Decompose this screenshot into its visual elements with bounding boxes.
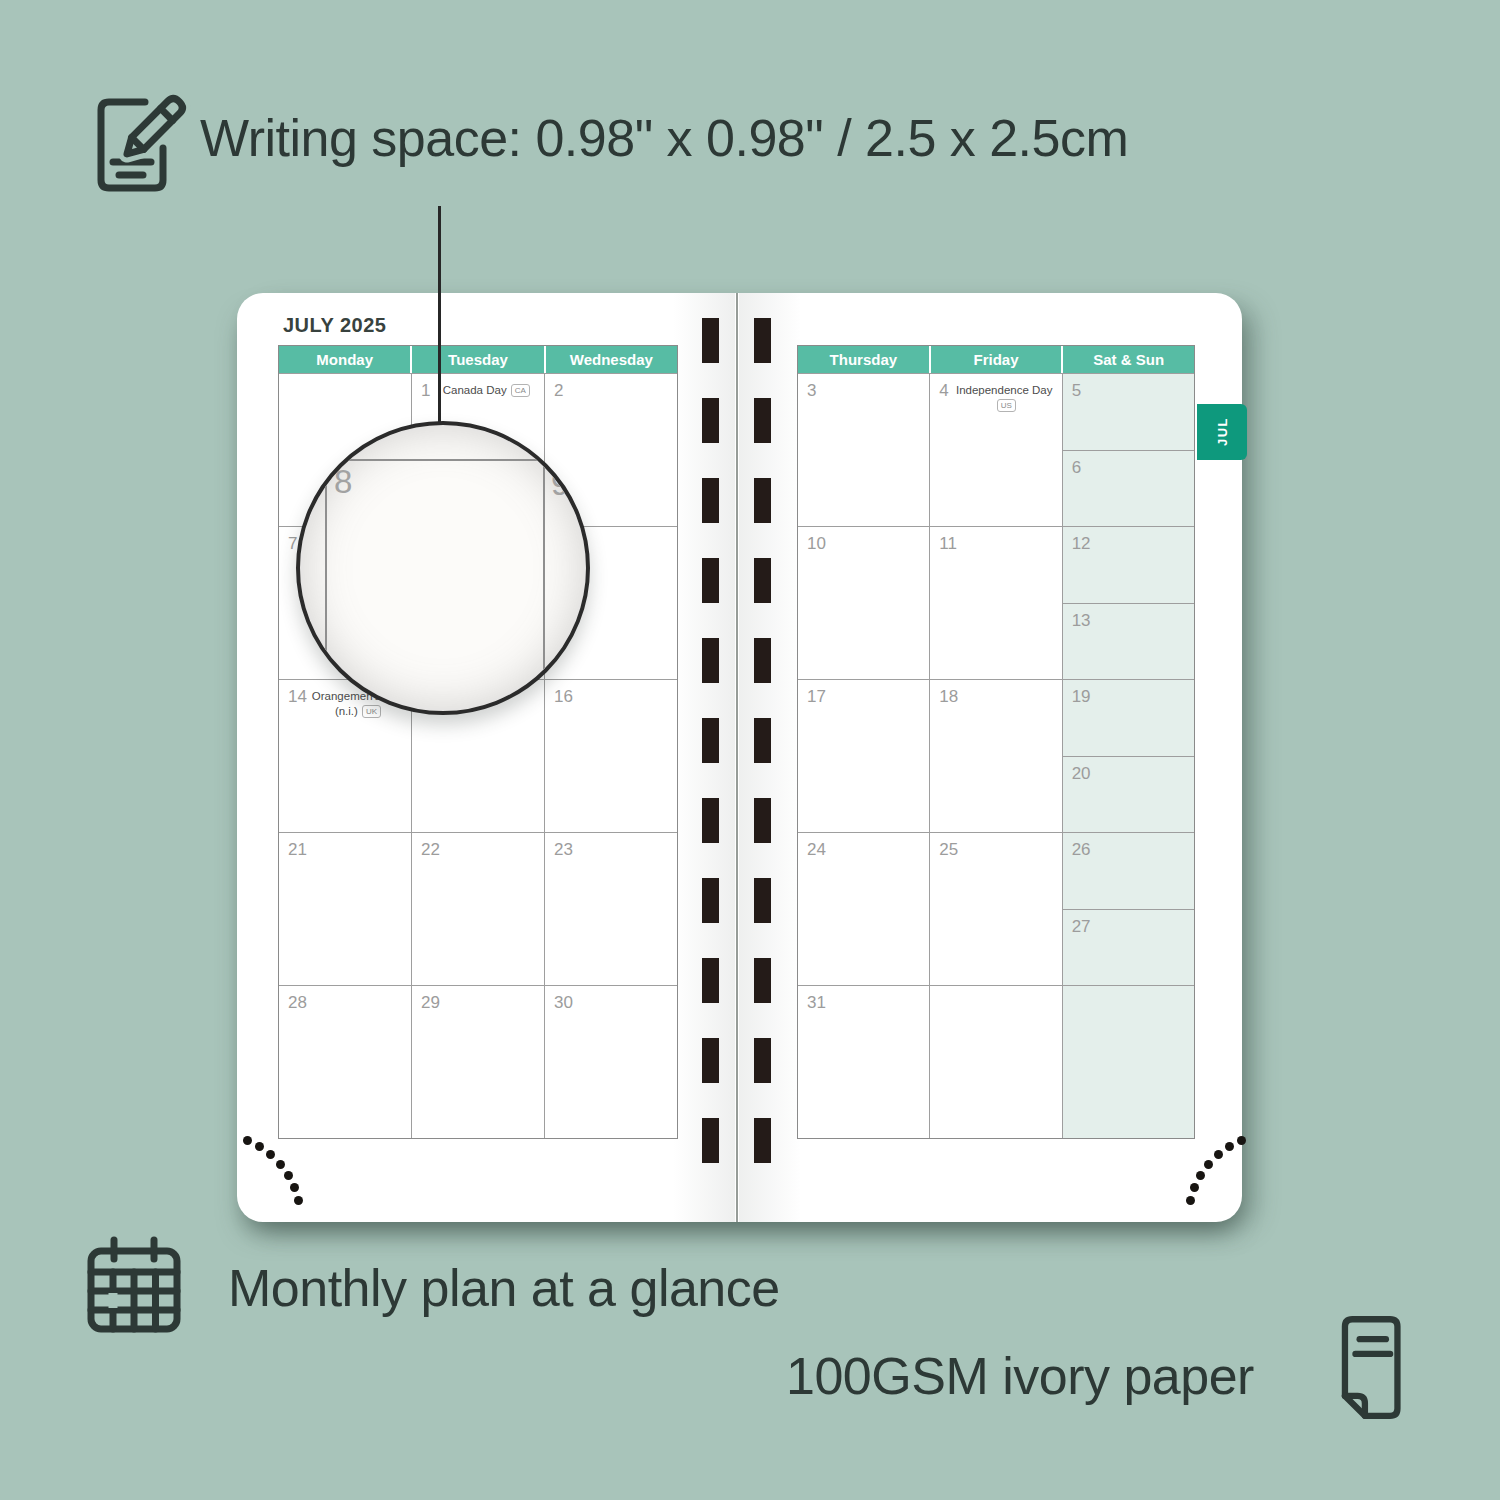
holiday-name: Canada DayCA	[430, 383, 542, 398]
calendar-cell	[929, 986, 1061, 1138]
day-number: 10	[798, 527, 826, 554]
perforation-dot	[290, 1183, 299, 1192]
binding-holes-right	[754, 318, 771, 1163]
calendar-week-row: 24252627	[798, 832, 1194, 985]
day-number: 28	[279, 986, 307, 1013]
day-number: 20	[1063, 757, 1091, 784]
calendar-cell: 31	[798, 986, 929, 1138]
page-divider	[736, 293, 738, 1222]
calendar-cell: 29	[411, 986, 544, 1138]
calendar-cell: 24	[798, 833, 929, 985]
day-number: 29	[412, 986, 440, 1013]
perforation-dot	[284, 1171, 293, 1180]
calendar-cell: 56	[1062, 374, 1194, 526]
calendar-week-row: 17181920	[798, 679, 1194, 832]
day-number: 17	[798, 680, 826, 707]
magnified-grid-line	[543, 459, 545, 711]
weekday-header-row: ThursdayFridaySat & Sun	[798, 346, 1194, 373]
calendar-cell: 17	[798, 680, 929, 832]
month-tab-label: JUL	[1215, 417, 1230, 446]
perforation-dot	[1196, 1171, 1205, 1180]
paper-text: 100GSM ivory paper	[786, 1346, 1254, 1406]
day-number: 3	[798, 374, 816, 401]
perforation-dot	[1186, 1196, 1195, 1205]
calendar-cell: 21	[279, 833, 411, 985]
calendar-cell: 1213	[1062, 527, 1194, 679]
day-number: 12	[1063, 527, 1091, 554]
calendar-cell: 28	[279, 986, 411, 1138]
day-number: 26	[1063, 833, 1091, 860]
day-number: 2	[545, 374, 563, 401]
binding-holes-left	[702, 318, 719, 1163]
holiday-region-badge: UK	[362, 705, 381, 718]
weekday-header-row: MondayTuesdayWednesday	[279, 346, 677, 373]
calendar-cell: 5	[1063, 374, 1194, 450]
day-number: 18	[930, 680, 958, 707]
calendar-cell: 30	[544, 986, 677, 1138]
day-number: 1	[412, 374, 430, 401]
day-number: 6	[1063, 451, 1081, 478]
holiday-region-badge: CA	[511, 384, 530, 397]
calendar-cell: 12	[1063, 527, 1194, 603]
magnified-day-number: 8	[334, 463, 352, 501]
day-header: Wednesday	[544, 346, 677, 373]
day-number: 5	[1063, 374, 1081, 401]
calendar-cell: 20	[1063, 756, 1194, 833]
perforation-dot	[294, 1196, 303, 1205]
perforation-dot	[1225, 1142, 1234, 1151]
callout-line	[438, 206, 441, 422]
monthly-plan-text: Monthly plan at a glance	[228, 1258, 780, 1318]
calendar-week-row: 31	[798, 985, 1194, 1138]
day-number: 30	[545, 986, 573, 1013]
calendar-cell: 22	[411, 833, 544, 985]
writing-space-text: Writing space: 0.98" x 0.98" / 2.5 x 2.5…	[200, 108, 1128, 168]
calendar-cell: 13	[1063, 603, 1194, 680]
day-number: 16	[545, 680, 573, 707]
day-number: 11	[930, 527, 957, 554]
day-header: Tuesday	[410, 346, 543, 373]
holiday-label: Canada DayCA	[430, 374, 544, 398]
calendar-cell: 26	[1063, 833, 1194, 909]
day-number: 31	[798, 986, 826, 1013]
day-number: 25	[930, 833, 958, 860]
notepad-pencil-icon	[93, 80, 193, 195]
calendar-cell	[1062, 986, 1194, 1138]
calendar-cell: 11	[929, 527, 1061, 679]
day-header: Sat & Sun	[1061, 346, 1194, 373]
calendar-cell: 6	[1063, 450, 1194, 527]
perforation-dot	[243, 1136, 252, 1145]
day-number: 14	[279, 680, 307, 707]
right-month-grid: ThursdayFridaySat & Sun34Independence Da…	[797, 345, 1195, 1139]
perforation-dot	[276, 1160, 285, 1169]
perforation-dot	[255, 1142, 264, 1151]
day-number: 23	[545, 833, 573, 860]
calendar-cell: 3	[798, 374, 929, 526]
calendar-cell: 2627	[1062, 833, 1194, 985]
calendar-cell: 18	[929, 680, 1061, 832]
month-title: JULY 2025	[283, 314, 386, 337]
perforation-dot	[1214, 1150, 1223, 1159]
calendar-cell: 1920	[1062, 680, 1194, 832]
month-tab-jul: JUL	[1197, 404, 1247, 460]
calendar-week-row: 212223	[279, 832, 677, 985]
day-header: Thursday	[798, 346, 929, 373]
calendar-grid-icon	[84, 1236, 184, 1336]
perforation-dot	[1204, 1160, 1213, 1169]
day-header: Friday	[929, 346, 1062, 373]
paper-sheet-icon	[1322, 1314, 1412, 1419]
planner-product-image: Writing space: 0.98" x 0.98" / 2.5 x 2.5…	[0, 0, 1500, 1500]
calendar-cell: 4Independence DayUS	[929, 374, 1061, 526]
calendar-week-row: 34Independence DayUS56	[798, 373, 1194, 526]
holiday-label: Independence DayUS	[949, 374, 1062, 413]
calendar-cell: 16	[544, 680, 677, 832]
day-number: 13	[1063, 604, 1091, 631]
perforation-dot	[1190, 1183, 1199, 1192]
calendar-cell: 27	[1063, 909, 1194, 986]
perforation-dot	[266, 1150, 275, 1159]
perforation-dot	[1237, 1136, 1246, 1145]
day-number: 19	[1063, 680, 1091, 707]
day-number: 4	[930, 374, 948, 401]
calendar-week-row: 282930	[279, 985, 677, 1138]
calendar-cell: 19	[1063, 680, 1194, 756]
day-number: 22	[412, 833, 440, 860]
holiday-region-badge: US	[997, 399, 1016, 412]
day-number: 24	[798, 833, 826, 860]
day-header: Monday	[279, 346, 410, 373]
calendar-cell: 25	[929, 833, 1061, 985]
magnifier-circle: 8 9	[296, 421, 590, 715]
calendar-cell: 23	[544, 833, 677, 985]
day-number: 7	[279, 527, 297, 554]
calendar-cell: 10	[798, 527, 929, 679]
day-number: 21	[279, 833, 307, 860]
day-number: 27	[1063, 910, 1091, 937]
holiday-name: Independence DayUS	[949, 383, 1060, 413]
calendar-week-row: 10111213	[798, 526, 1194, 679]
